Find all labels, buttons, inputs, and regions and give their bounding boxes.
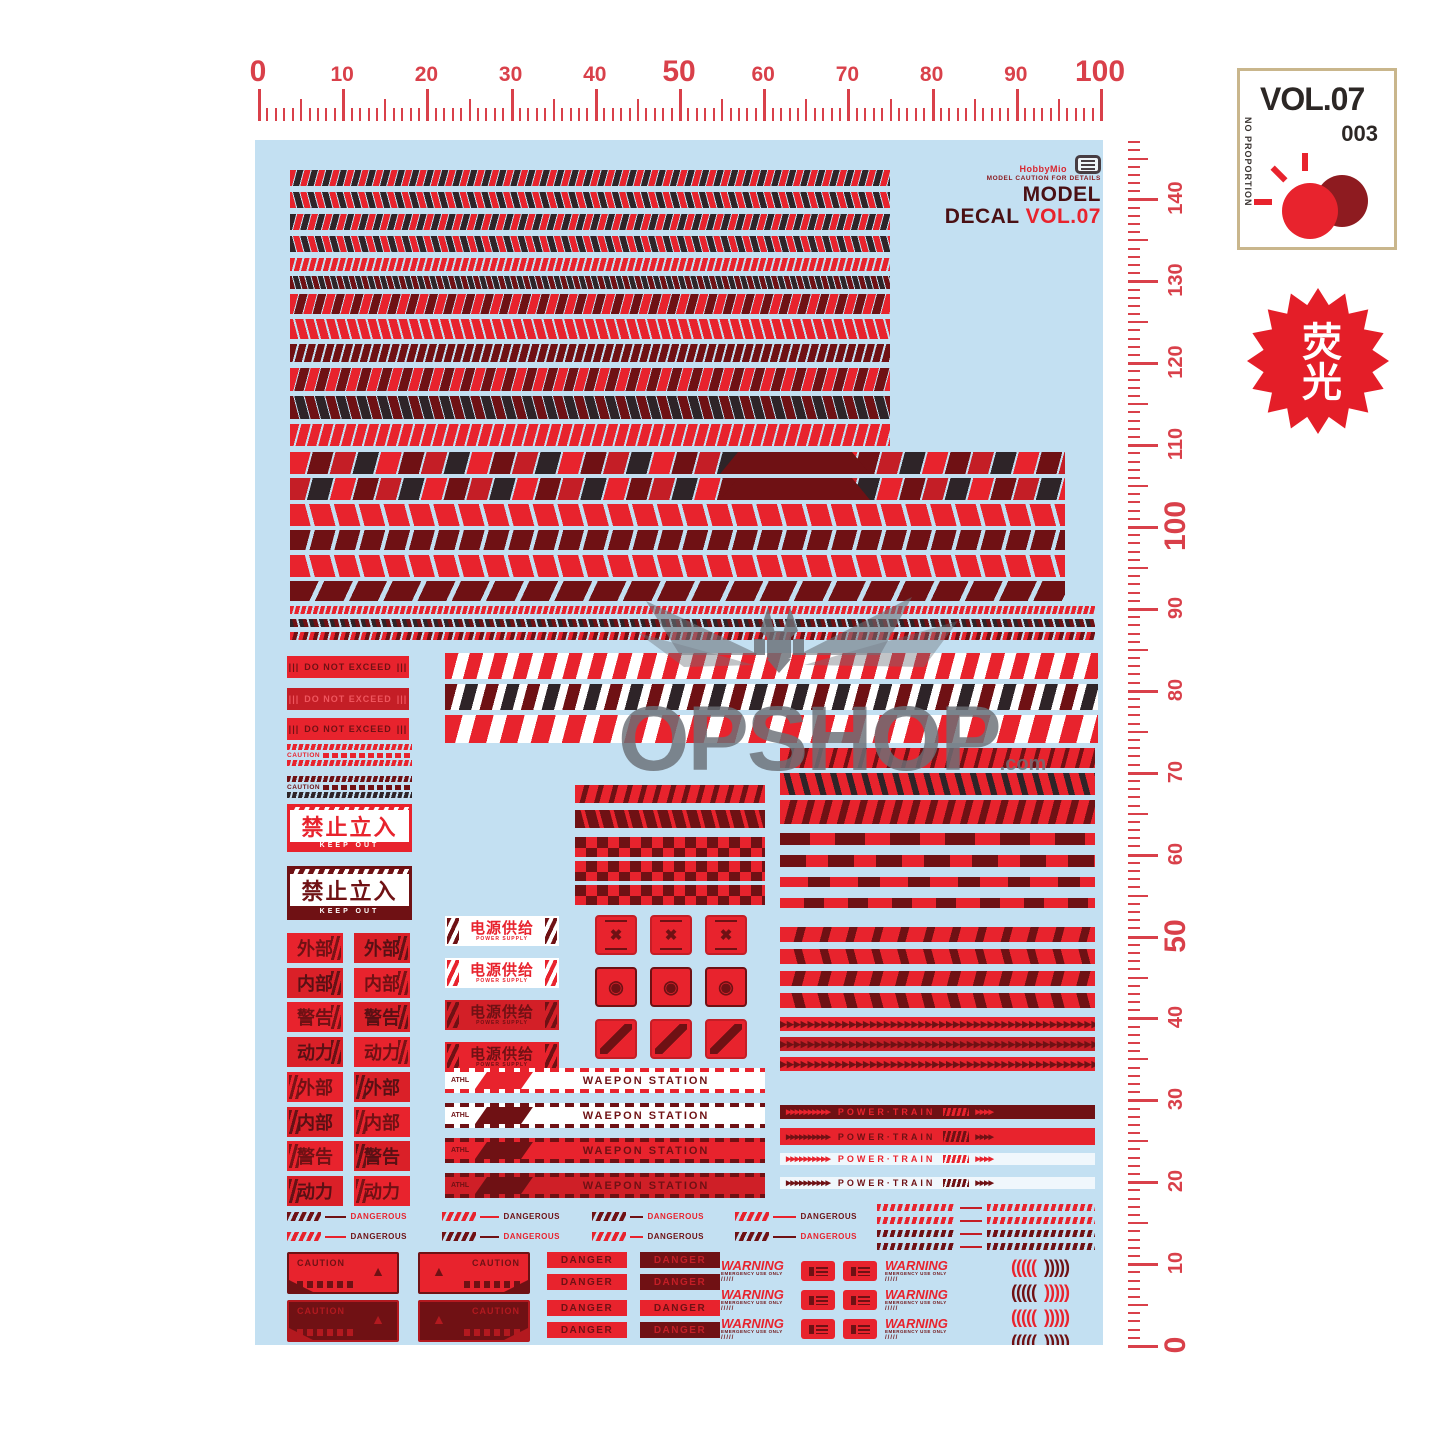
ruler-right-label: 70 [1162, 742, 1190, 802]
pt-hatch [943, 1131, 969, 1141]
fluorescent-badge: 荧光 [1247, 288, 1389, 434]
ruler-right-tick [1128, 411, 1140, 413]
ruler-top-tick [502, 108, 504, 121]
ps-edge-stripe [447, 918, 459, 944]
brackets-left: ((((( [1011, 1283, 1036, 1301]
ruler-top-tick [637, 99, 639, 121]
decal-square: ◉ [595, 967, 637, 1007]
ruler-right-tick [1128, 264, 1140, 266]
ruler-top-tick [418, 108, 420, 121]
ruler-right-tick [1128, 936, 1158, 939]
ruler-right-tick [1128, 1050, 1140, 1052]
ruler-right-label: 130 [1162, 250, 1190, 310]
decal-warning-row: WARNINGEMERGENCY USE ONLY/////WARNINGEME… [721, 1316, 979, 1342]
tape-mid: CAUTION [287, 783, 412, 792]
decal-grid-cell: 内部 [354, 968, 410, 998]
ruler-right-tick [1128, 518, 1140, 520]
badge-side-text: NO PROPORTION [1243, 117, 1253, 207]
ruler-right-tick [1128, 886, 1140, 888]
stripe-band [290, 452, 1065, 474]
decal-caution-box: CAUTION▲ [287, 1300, 399, 1342]
keep-out-en: KEEP OUT [290, 842, 409, 849]
ruler-top-tick [435, 108, 437, 121]
tape-stripe [287, 776, 412, 782]
decal-do-not-exceed: |||DO NOT EXCEED||| [287, 688, 409, 710]
decal-square: ✖ [595, 915, 637, 955]
ruler-right-tick [1128, 1280, 1140, 1282]
stripe-band [780, 993, 1095, 1008]
warning-icon-lines [816, 1296, 828, 1305]
dangerous-line [480, 1236, 499, 1238]
decal-square [595, 1019, 637, 1059]
ruler-right-tick [1128, 477, 1140, 479]
ruler-top-label: 50 [649, 55, 709, 89]
decal-square [705, 1019, 747, 1059]
decal-power-supply: 电源供给POWER SUPPLY [445, 1000, 559, 1030]
pt-hatch [943, 1155, 969, 1162]
ruler-right-tick [1128, 559, 1140, 561]
ruler-right-tick [1128, 1017, 1158, 1020]
ruler-top-label: 70 [817, 63, 877, 87]
ruler-top-label: 60 [733, 63, 793, 87]
ruler-right-tick [1128, 1108, 1140, 1110]
ws-edge [445, 1194, 765, 1198]
grid-cell-label: 内部 [364, 1109, 400, 1135]
decal-danger: DANGER [547, 1252, 627, 1268]
ruler-right-tick [1128, 944, 1140, 946]
stripe-band [290, 632, 1095, 640]
stripe-band [575, 837, 765, 857]
ruler-right-label: 80 [1162, 660, 1190, 720]
ruler-right-tick [1128, 608, 1158, 611]
stripe-band [780, 800, 1095, 824]
decal-square: ◉ [705, 967, 747, 1007]
decal-danger: DANGER [547, 1274, 627, 1290]
arrow-band: ▶▶▶▶▶▶▶▶▶▶▶▶▶▶▶▶▶▶▶▶▶▶▶▶▶▶▶▶▶▶▶▶▶▶▶▶▶▶▶▶… [780, 1057, 1095, 1071]
ruler-right-tick [1128, 911, 1140, 913]
warning-marks: ///// [721, 1277, 793, 1283]
ruler-top-tick [443, 108, 445, 121]
decal-caution-tape: CAUTION [287, 776, 412, 798]
ruler-top-tick [730, 108, 732, 121]
ruler-top-tick [586, 108, 588, 121]
dne-bars: ||| [289, 662, 300, 672]
ruler-top-tick [1100, 89, 1103, 121]
stripe-band [575, 885, 765, 905]
ruler-right-tick [1128, 633, 1140, 635]
ruler-right-tick [1128, 346, 1140, 348]
ruler-right-tick [1128, 158, 1148, 160]
decal-caution-box: CAUTION▲ [418, 1252, 530, 1294]
warning-triangle-icon: ▲ [371, 1263, 385, 1279]
ruler-top-tick [965, 108, 967, 121]
ws-label: WAEPON STATION [527, 1075, 765, 1087]
pt-label: POWER·TRAIN [838, 1132, 936, 1142]
square-target-icon: ◉ [663, 977, 679, 998]
decal-weapon-station: ATHLWAEPON STATION [445, 1068, 765, 1093]
warning-text-block: WARNINGEMERGENCY USE ONLY///// [885, 1317, 957, 1342]
fluorescent-text: 荧光 [1247, 288, 1389, 434]
brackets-left: ((((( [1011, 1308, 1036, 1326]
ruler-right-tick [1128, 624, 1140, 626]
ws-mid: ATHLWAEPON STATION [445, 1142, 765, 1159]
tape-caution-text: CAUTION [287, 784, 320, 791]
dangerous-zigzag [442, 1232, 476, 1241]
pt-label: POWER·TRAIN [838, 1178, 936, 1188]
ruler-top-tick [923, 108, 925, 121]
ws-prefix: ATHL [451, 1147, 469, 1154]
pt-label: POWER·TRAIN [838, 1107, 936, 1117]
square-slash-icon [710, 1024, 742, 1054]
ruler-right-tick [1128, 1042, 1140, 1044]
grid-cell-label: 动力 [297, 1178, 333, 1204]
ruler-top-tick [477, 108, 479, 121]
ruler-top-tick [342, 89, 345, 121]
danger-text: DANGER [654, 1303, 706, 1314]
ps-edge-stripe [545, 1002, 557, 1028]
ruler-right-tick [1128, 1116, 1140, 1118]
stripe-band [445, 715, 1098, 743]
stripe-band [290, 236, 890, 252]
ps-cn: 电源供给 [470, 921, 534, 936]
dangerous-zigzag [287, 1232, 321, 1241]
stripe-band [780, 748, 1095, 768]
danger-text: DANGER [561, 1303, 613, 1314]
grid-cell-label: 动力 [364, 1178, 400, 1204]
ruler-right-tick [1128, 960, 1140, 962]
ruler-right-label: 0 [1162, 1315, 1190, 1375]
ruler-top-label: 100 [1070, 55, 1130, 89]
stripe-band [290, 214, 890, 230]
ruler-right-tick [1128, 665, 1140, 667]
dangerous-zigzag [442, 1212, 476, 1221]
ruler-top-tick [999, 108, 1001, 121]
decal-grid-cell: 警告 [287, 1141, 343, 1171]
ruler-top-tick [1083, 108, 1085, 121]
ruler-right-tick [1128, 903, 1140, 905]
ws-label: WAEPON STATION [527, 1110, 765, 1122]
decal-square: ✖ [705, 915, 747, 955]
stripe-band [290, 192, 890, 208]
ps-cn: 电源供给 [470, 1005, 534, 1020]
decal-caution-box: CAUTION▲ [287, 1252, 399, 1294]
ruler-right-tick [1128, 1157, 1140, 1159]
ruler-top-tick [519, 108, 521, 121]
badge-ray-icon [1302, 153, 1308, 171]
ruler-right-tick [1128, 231, 1140, 233]
ruler-right-tick [1128, 993, 1140, 995]
hp-stripes [987, 1204, 1095, 1211]
ruler-right-tick [1128, 338, 1140, 340]
ws-slash [475, 1072, 533, 1089]
ruler-right-tick [1128, 1083, 1140, 1085]
decal-dangerous: DANGEROUS [442, 1230, 560, 1243]
ruler-top-label: 10 [312, 63, 372, 87]
ruler-right-tick [1128, 461, 1140, 463]
dangerous-text: DANGEROUS [647, 1232, 704, 1241]
caution-box-hatch [297, 1329, 353, 1336]
ruler-top-tick [696, 108, 698, 121]
caution-box-text: CAUTION [472, 1258, 520, 1268]
decal-danger: DANGER [547, 1322, 627, 1338]
ruler-right-label: 30 [1162, 1069, 1190, 1129]
grid-cell-label: 动力 [297, 1039, 333, 1065]
ruler-top-tick [266, 108, 268, 121]
ruler-right-tick [1128, 927, 1140, 929]
ruler-top-tick [595, 89, 598, 121]
decal-caution-tape: CAUTION [287, 744, 412, 766]
ruler-right-tick [1128, 952, 1140, 954]
dne-text: DO NOT EXCEED [304, 694, 392, 704]
grid-cell-label: 内部 [297, 970, 333, 996]
ruler-top-tick [772, 108, 774, 121]
keep-out-cn: 禁止立入 [290, 874, 409, 906]
decal-grid-cell: 内部 [354, 1107, 410, 1137]
dangerous-zigzag [592, 1212, 626, 1221]
stripe-band [290, 606, 1095, 614]
decal-square: ◉ [650, 967, 692, 1007]
ruler-right-label: 20 [1162, 1151, 1190, 1211]
ruler-right-tick [1128, 1271, 1140, 1273]
ps-en: POWER SUPPLY [476, 979, 528, 984]
ruler-top-tick [1016, 89, 1019, 121]
caution-box-text: CAUTION [472, 1306, 520, 1316]
ruler-top-tick [544, 108, 546, 121]
ruler-right-tick [1128, 329, 1140, 331]
ruler-top-tick [452, 108, 454, 121]
page: HobbyMio MODEL CAUTION FOR DETAILS MODEL… [0, 0, 1445, 1445]
warning-title: WARNING [721, 1259, 793, 1273]
grid-cell-label: 动力 [364, 1039, 400, 1065]
warning-text-block: WARNINGEMERGENCY USE ONLY///// [885, 1288, 957, 1313]
decal-grid-cell: 内部 [287, 1107, 343, 1137]
dangerous-line [630, 1236, 643, 1238]
vol-badge: NO PROPORTION VOL.07 003 [1237, 68, 1397, 250]
square-bottom-bar [605, 948, 627, 950]
ruler-top-tick [746, 108, 748, 121]
ruler-right-tick [1128, 1165, 1140, 1167]
ruler-right-tick [1128, 714, 1140, 716]
ruler-right-tick [1128, 207, 1140, 209]
stripe-band [290, 581, 1065, 601]
ruler-top-label: 20 [396, 63, 456, 87]
dangerous-line [773, 1216, 796, 1218]
stripe-band [780, 927, 1095, 942]
ruler-right-tick [1128, 256, 1140, 258]
ruler-right-tick [1128, 1026, 1140, 1028]
ruler-top-tick [612, 108, 614, 121]
stripe-band [290, 619, 1095, 627]
ws-prefix: ATHL [451, 1112, 469, 1119]
decal-warning-row: WARNINGEMERGENCY USE ONLY/////WARNINGEME… [721, 1287, 979, 1313]
decal-weapon-station: ATHLWAEPON STATION [445, 1138, 765, 1163]
ruler-top-label: 30 [481, 63, 541, 87]
stripe-band [290, 424, 890, 446]
ruler-right-tick [1128, 1132, 1140, 1134]
square-target-icon: ◉ [718, 977, 734, 998]
stripe-band [780, 949, 1095, 964]
ruler-right-tick [1128, 239, 1148, 241]
ruler-top-tick [948, 108, 950, 121]
ruler-right-tick [1128, 641, 1140, 643]
ruler-right-tick [1128, 1099, 1158, 1102]
ruler-top-tick [881, 108, 883, 121]
stripe-band [290, 396, 890, 419]
stripe-band [290, 478, 1065, 500]
decal-power-supply: 电源供给POWER SUPPLY [445, 958, 559, 988]
danger-text: DANGER [561, 1325, 613, 1336]
ruler-top-tick [494, 108, 496, 121]
ruler-right-label: 60 [1162, 824, 1190, 884]
warning-icon-lines [816, 1325, 828, 1334]
badge-ray-icon [1271, 166, 1288, 183]
square-x-icon: ✖ [720, 926, 733, 944]
ruler-right-tick [1128, 444, 1158, 447]
ruler-right-tick [1128, 657, 1140, 659]
ruler-right-tick [1128, 198, 1158, 201]
ruler-top-tick [864, 108, 866, 121]
ruler-right-tick [1128, 788, 1140, 790]
warning-triangle-icon: ▲ [432, 1263, 446, 1279]
ruler-right-tick [1128, 821, 1140, 823]
ruler-right-tick [1128, 780, 1140, 782]
ruler-right-tick [1128, 485, 1148, 487]
stripe-band [290, 344, 890, 362]
pt-arrows: ▶▶▶▶▶▶▶▶▶▶ [786, 1155, 830, 1163]
ruler-top-tick [426, 89, 429, 121]
ruler-right-tick [1128, 313, 1140, 315]
ruler-right-tick [1128, 289, 1140, 291]
ruler-right-tick [1128, 1067, 1140, 1069]
dne-bars: ||| [397, 694, 408, 704]
pt-label: POWER·TRAIN [838, 1154, 936, 1164]
ruler-top-tick [797, 108, 799, 121]
decal-hardpoint-row [877, 1203, 1095, 1212]
ruler-top-tick [932, 89, 935, 121]
dangerous-line [773, 1236, 796, 1238]
dangerous-text: DANGEROUS [800, 1232, 857, 1241]
ruler-right-tick [1128, 870, 1140, 872]
decal-do-not-exceed: |||DO NOT EXCEED||| [287, 718, 409, 740]
ruler-right-tick [1128, 551, 1140, 553]
ruler-top-tick [578, 108, 580, 121]
dangerous-text: DANGEROUS [800, 1212, 857, 1221]
ruler-right-tick [1128, 706, 1140, 708]
ws-slash [475, 1177, 533, 1194]
warning-icon-box [801, 1319, 835, 1339]
decal-keep-out: 禁止立入KEEP OUT [287, 866, 412, 920]
ruler-right-tick [1128, 682, 1140, 684]
ruler-right-tick [1128, 1345, 1158, 1348]
ruler-right-tick [1128, 977, 1148, 979]
ruler-top-tick [898, 108, 900, 121]
warning-icon-bar [851, 1267, 856, 1276]
warning-icon-bar [809, 1267, 814, 1276]
ps-cn: 电源供给 [470, 1047, 534, 1062]
ruler-top-tick [359, 108, 361, 121]
ruler-top-tick [384, 99, 386, 121]
ruler-top-tick [325, 108, 327, 121]
square-slash-icon [600, 1024, 632, 1054]
warning-icon-bar [809, 1325, 814, 1334]
stripe-band [290, 530, 1065, 550]
ps-mid: 电源供给POWER SUPPLY [461, 958, 543, 988]
ruler-right-tick [1128, 280, 1158, 283]
ruler-top-label: 90 [986, 63, 1046, 87]
ruler-right-tick [1128, 1206, 1140, 1208]
dangerous-zigzag [735, 1232, 769, 1241]
logo-caption: MODEL CAUTION FOR DETAILS [891, 176, 1101, 183]
ruler-right-tick [1128, 919, 1140, 921]
danger-text: DANGER [654, 1277, 706, 1288]
decal-grid-cell: 内部 [287, 968, 343, 998]
grid-cell-label: 警告 [297, 1143, 333, 1169]
tape-stripe [287, 744, 412, 750]
ruler-right-tick [1128, 321, 1148, 323]
warning-marks: ///// [885, 1277, 957, 1283]
ruler-top-tick [974, 99, 976, 121]
ruler-top-tick [780, 108, 782, 121]
decal-dangerous: DANGEROUS [442, 1210, 560, 1223]
pt-hatch [943, 1108, 969, 1116]
stripe-band [290, 555, 1065, 577]
ruler-right-tick [1128, 968, 1140, 970]
ruler-top-tick [873, 108, 875, 121]
ruler-top-label: 80 [902, 63, 962, 87]
ws-slash [475, 1107, 533, 1124]
ruler-top-tick [309, 108, 311, 121]
caution-box-text: CAUTION [297, 1306, 345, 1316]
ruler-right-tick [1128, 739, 1140, 741]
ruler-top-tick [300, 99, 302, 121]
danger-text: DANGER [654, 1325, 706, 1336]
ruler-right-tick [1128, 755, 1140, 757]
decal-danger: DANGER [640, 1252, 720, 1268]
ws-mid: ATHLWAEPON STATION [445, 1177, 765, 1194]
warning-icon-box [843, 1290, 877, 1310]
ruler-right-tick [1128, 354, 1140, 356]
decal-power-train: ▶▶▶▶▶▶▶▶▶▶POWER·TRAIN▶▶▶▶ [780, 1105, 1095, 1119]
ps-en: POWER SUPPLY [476, 937, 528, 942]
ruler-right-tick [1128, 149, 1140, 151]
ruler-right-tick [1128, 1296, 1140, 1298]
stripe-band [290, 319, 890, 339]
ruler-right-tick [1128, 575, 1140, 577]
badge-vol: VOL.07 [1260, 81, 1364, 118]
ruler-top-tick [713, 108, 715, 121]
ws-edge [445, 1124, 765, 1128]
ws-mid: ATHLWAEPON STATION [445, 1072, 765, 1089]
ruler-right-tick [1128, 1255, 1140, 1257]
ruler-right-tick [1128, 805, 1140, 807]
ruler-right-tick [1128, 370, 1140, 372]
decal-grid-cell: 动力 [354, 1037, 410, 1067]
ruler-top-tick [553, 99, 555, 121]
ruler-right-label: 90 [1162, 578, 1190, 638]
stripe-band [780, 855, 1095, 867]
logo-vol: VOL.07 [1026, 205, 1101, 228]
ruler-right-tick [1128, 723, 1140, 725]
ps-mid: 电源供给POWER SUPPLY [461, 916, 543, 946]
ruler-right-tick [1128, 428, 1140, 430]
grid-cell-label: 内部 [297, 1109, 333, 1135]
decal-do-not-exceed: |||DO NOT EXCEED||| [287, 656, 409, 678]
ruler-right-tick [1128, 248, 1140, 250]
stripe-band [445, 684, 1098, 710]
danger-text: DANGER [561, 1277, 613, 1288]
ruler-top-tick [789, 108, 791, 121]
ruler-right-tick [1128, 567, 1148, 569]
